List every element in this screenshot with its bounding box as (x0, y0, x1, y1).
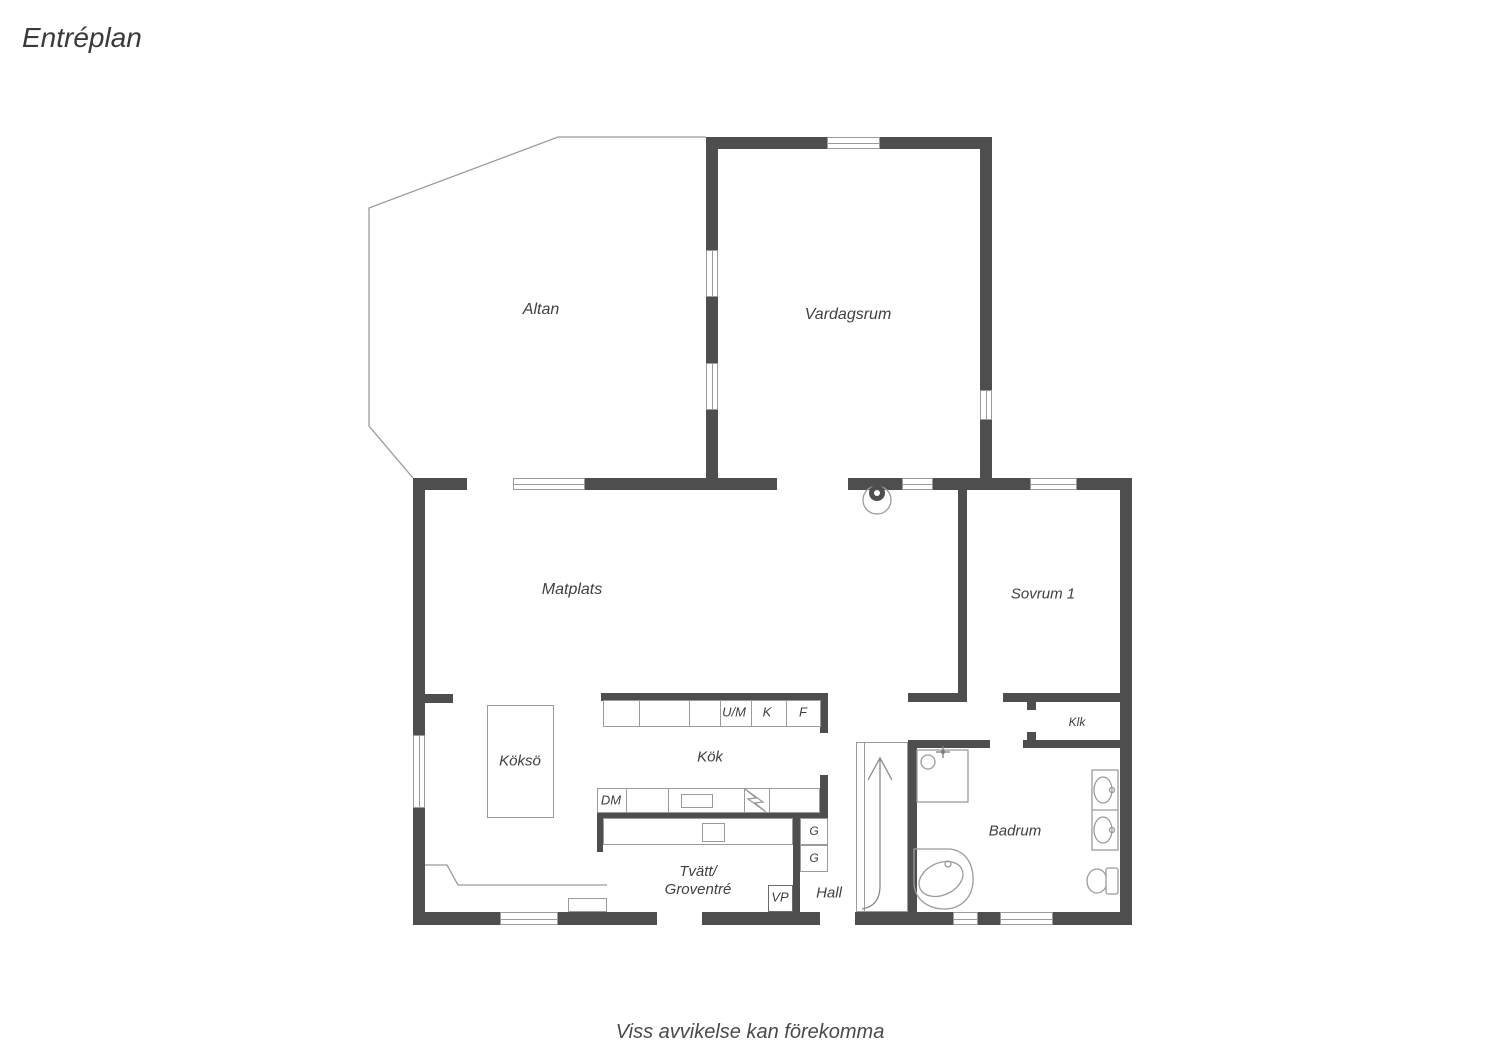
room-label-kokso: Köksö (499, 753, 541, 770)
fireplace-flue-hole (874, 490, 880, 496)
room-label-tvatt-groventre: Tvätt/ Groventré (665, 863, 732, 899)
room-label-tvatt-line2: Groventré (665, 881, 732, 899)
stair-arrow (862, 758, 880, 909)
floor-plan: Entréplan (0, 0, 1500, 1060)
disclaimer-text: Viss avvikelse kan förekomma (616, 1021, 885, 1044)
fixture-label-um: U/M (722, 705, 746, 720)
fixture-label-vp: VP (771, 890, 788, 905)
shower-faucet-dot (941, 750, 945, 754)
bathtub-inner (913, 855, 968, 903)
lightning-bolt-icon (745, 789, 766, 812)
fixture-label-g-lower: G (809, 851, 818, 865)
room-label-altan: Altan (523, 301, 559, 319)
room-label-badrum: Badrum (989, 823, 1042, 840)
bathtub (914, 849, 973, 909)
fixture-label-k: K (763, 705, 772, 720)
toilet-tank (1106, 868, 1118, 894)
fixture-label-f: F (799, 705, 807, 720)
fixture-label-dm: DM (601, 793, 621, 808)
fixture-layer (0, 0, 1500, 1060)
toilet-bowl (1087, 869, 1107, 893)
room-label-hall: Hall (816, 885, 842, 902)
room-label-tvatt-line1: Tvätt/ (665, 863, 732, 881)
room-label-sovrum1: Sovrum 1 (1011, 586, 1075, 603)
room-label-klk: Klk (1069, 715, 1086, 729)
fixture-label-g-upper: G (809, 824, 818, 838)
room-label-vardagsrum: Vardagsrum (805, 306, 892, 324)
room-label-matplats: Matplats (542, 581, 602, 599)
room-label-kok: Kök (697, 749, 723, 766)
shower-drain (921, 755, 935, 769)
